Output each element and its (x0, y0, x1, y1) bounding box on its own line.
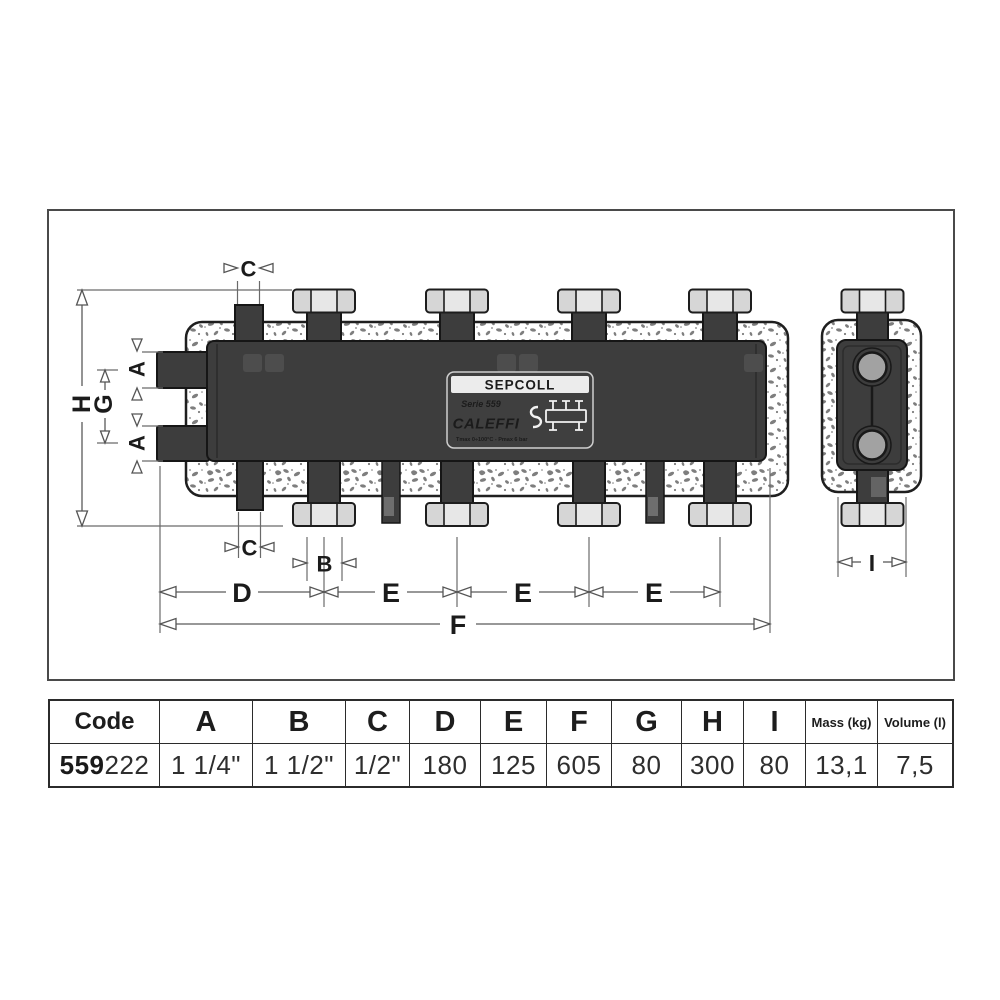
dim-label-e3: E (645, 578, 663, 608)
dimension-drawing: SEPCOLL Serie 559 CALEFFI Tmax 0÷100°C -… (0, 0, 1000, 1000)
left-port-bottom (157, 426, 209, 461)
dim-label-a-top: A (125, 361, 150, 377)
dim-label-c-bottom: C (242, 536, 258, 561)
col-header-c: C (346, 701, 410, 743)
value-i: 80 (744, 744, 806, 786)
spec-table: Code A B C D E F G H I Mass (kg) Volume … (48, 699, 954, 788)
col-header-b: B (253, 701, 346, 743)
value-a: 1 1/4" (160, 744, 253, 786)
side-view (822, 290, 921, 527)
value-e: 125 (481, 744, 547, 786)
value-g: 80 (612, 744, 682, 786)
col-header-i: I (744, 701, 806, 743)
value-b: 1 1/2" (253, 744, 346, 786)
drain-cap-2 (648, 497, 658, 516)
drain-cap-1 (384, 497, 394, 516)
top-vent-stub (235, 305, 263, 345)
col-header-h: H (682, 701, 744, 743)
col-header-volume: Volume (l) (878, 701, 952, 743)
col-header-f: F (547, 701, 612, 743)
left-port-top (157, 352, 209, 388)
value-code: 559222 (50, 744, 160, 786)
dim-label-e2: E (514, 578, 532, 608)
col-header-g: G (612, 701, 682, 743)
dim-label-g: G (90, 394, 118, 413)
product-label: SEPCOLL Serie 559 CALEFFI Tmax 0÷100°C -… (447, 372, 593, 448)
value-mass: 13,1 (806, 744, 878, 786)
dim-label-c-top: C (241, 257, 257, 282)
dim-label-a-bottom: A (125, 435, 150, 451)
front-view: SEPCOLL Serie 559 CALEFFI Tmax 0÷100°C -… (157, 290, 788, 527)
dim-label-b: B (317, 552, 333, 577)
col-header-mass: Mass (kg) (806, 701, 878, 743)
col-header-code: Code (50, 701, 160, 743)
value-volume: 7,5 (878, 744, 952, 786)
spec-table-header-row: Code A B C D E F G H I Mass (kg) Volume … (50, 701, 952, 744)
sepcoll-title: SEPCOLL (485, 378, 556, 393)
spec-table-value-row: 559222 1 1/4" 1 1/2" 1/2" 180 125 605 80… (50, 744, 952, 786)
value-code-prefix: 559 (60, 750, 105, 781)
value-c: 1/2" (346, 744, 410, 786)
dim-label-e1: E (382, 578, 400, 608)
dim-label-f: F (450, 610, 467, 640)
value-d: 180 (410, 744, 481, 786)
bottom-stub (237, 459, 263, 510)
col-header-a: A (160, 701, 253, 743)
specs-text: Tmax 0÷100°C - Pmax 6 bar (456, 437, 528, 443)
dim-label-d: D (232, 578, 252, 608)
col-header-d: D (410, 701, 481, 743)
value-h: 300 (682, 744, 744, 786)
col-header-e: E (481, 701, 547, 743)
dim-label-i: I (869, 550, 875, 576)
brand-logo: CALEFFI (453, 416, 520, 433)
series-label: Serie 559 (461, 399, 501, 409)
value-code-suffix: 222 (105, 750, 150, 781)
value-f: 605 (547, 744, 612, 786)
technical-drawing-page: SEPCOLL Serie 559 CALEFFI Tmax 0÷100°C -… (0, 0, 1000, 1000)
